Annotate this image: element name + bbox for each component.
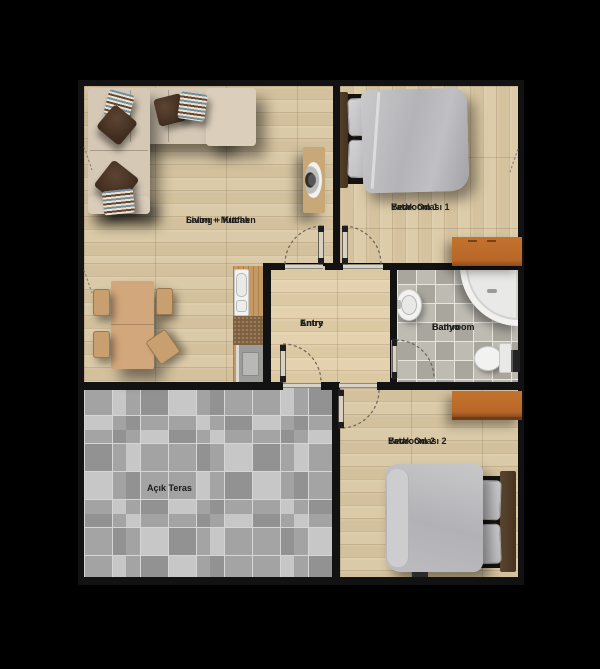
wall-lower-segment <box>78 382 283 390</box>
door-threshold-bathroom <box>391 340 396 378</box>
striped-pillow <box>177 91 207 121</box>
exterior-wall-bottom <box>78 577 524 585</box>
door-threshold-bedroom2 <box>339 383 377 388</box>
wall-living-bedroom1 <box>333 84 340 270</box>
floor-plan: Salon + Mutfak Living + Kitchen Yatak Od… <box>0 0 600 669</box>
bedroom2-label-en: Bedroom 2 <box>388 436 435 447</box>
kitchen-sink-drainer <box>236 300 247 312</box>
exterior-wall-right <box>518 80 524 585</box>
door-threshold-entrance <box>283 383 321 388</box>
living-room-label-en: Living + Kitchen <box>186 215 256 226</box>
tv-speaker <box>308 174 316 186</box>
bed2-headboard <box>500 471 516 572</box>
bedroom2-dresser <box>452 391 522 420</box>
dresser-handle <box>487 240 496 242</box>
dresser-handle <box>468 240 477 242</box>
striped-pillow <box>102 188 135 215</box>
wall-mid-segment <box>325 263 343 270</box>
exterior-wall-left <box>78 80 84 585</box>
dining-chair <box>156 288 173 315</box>
bathtub-faucet <box>487 289 497 293</box>
exterior-wall-top <box>78 80 524 86</box>
dining-table <box>111 281 154 369</box>
kitchen-worktop <box>233 316 263 345</box>
kitchen-sink-bowl <box>236 273 247 297</box>
bed2-duvet-pillow <box>387 469 409 567</box>
entry-floor <box>266 266 390 384</box>
wall-kitchen-entry <box>263 263 271 384</box>
dining-chair <box>93 331 110 358</box>
bathroom-label-en: Bathroom <box>432 322 475 333</box>
terrace-floor <box>84 388 332 579</box>
bathroom-radiator <box>511 350 520 372</box>
washbasin-bowl <box>401 295 417 315</box>
sofa-chaise-section <box>206 88 256 146</box>
wall-entry-bathroom-upper <box>390 263 397 340</box>
entry-label-en: Entry <box>300 318 323 329</box>
dining-table-seam <box>111 324 154 325</box>
bedroom1-label-en: Bedroom 1 <box>391 202 438 213</box>
dining-chair <box>93 289 110 316</box>
door-threshold-bedroom1 <box>343 264 383 269</box>
terrace-label-tr: Açık Teras <box>147 483 192 494</box>
toilet-bowl <box>474 346 502 371</box>
wall-terrace-bedroom2 <box>332 382 340 579</box>
oven-top <box>242 352 259 376</box>
sofa-cushion-seam <box>90 150 148 151</box>
wall-lower-segment <box>377 382 524 390</box>
door-threshold-living-entry <box>285 264 323 269</box>
